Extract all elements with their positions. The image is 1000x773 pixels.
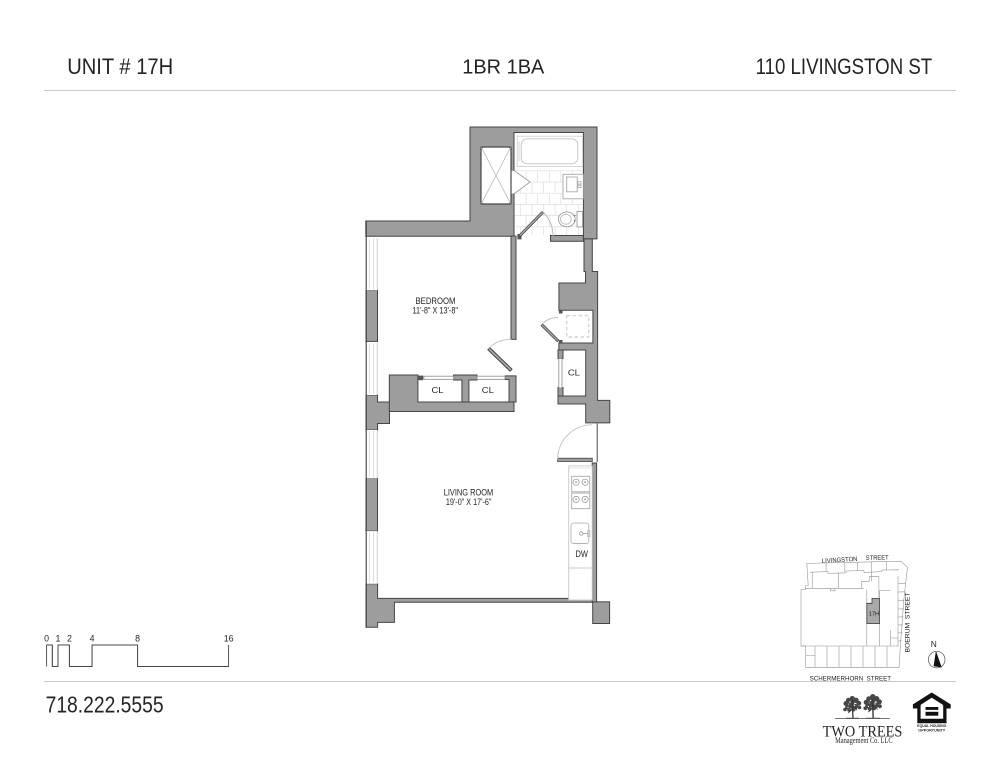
- svg-text:STREET: STREET: [866, 554, 889, 561]
- svg-text:LIVING ROOM: LIVING ROOM: [444, 486, 494, 497]
- svg-text:17H: 17H: [869, 612, 880, 618]
- svg-text:110 LIVINGSTON ST: 110 LIVINGSTON ST: [756, 54, 933, 79]
- svg-text:11'-8" X 13'-8": 11'-8" X 13'-8": [413, 305, 459, 315]
- svg-text:Management Co. LLC: Management Co. LLC: [835, 736, 893, 745]
- svg-text:4: 4: [90, 634, 95, 644]
- svg-text:BOERUM STREET: BOERUM STREET: [905, 592, 912, 652]
- svg-text:CL: CL: [432, 386, 445, 395]
- svg-text:CL: CL: [482, 386, 495, 395]
- svg-text:DW: DW: [576, 549, 589, 559]
- svg-text:N: N: [931, 639, 937, 649]
- svg-text:1: 1: [56, 634, 61, 644]
- svg-text:SCHERMERHORN STREET: SCHERMERHORN STREET: [810, 676, 892, 683]
- svg-text:1BR 1BA: 1BR 1BA: [462, 56, 544, 79]
- svg-text:LIVINGSTON: LIVINGSTON: [822, 556, 858, 565]
- svg-text:OPPORTUNITY: OPPORTUNITY: [918, 727, 945, 732]
- svg-text:8: 8: [135, 634, 140, 644]
- svg-text:19'-0" X 17'-6": 19'-0" X 17'-6": [446, 497, 492, 507]
- svg-text:2: 2: [67, 634, 72, 644]
- svg-text:718.222.5555: 718.222.5555: [46, 692, 164, 718]
- svg-text:UNIT # 17H: UNIT # 17H: [67, 54, 173, 79]
- svg-text:0: 0: [44, 634, 49, 644]
- svg-text:16: 16: [224, 634, 234, 644]
- svg-text:CL: CL: [568, 368, 581, 377]
